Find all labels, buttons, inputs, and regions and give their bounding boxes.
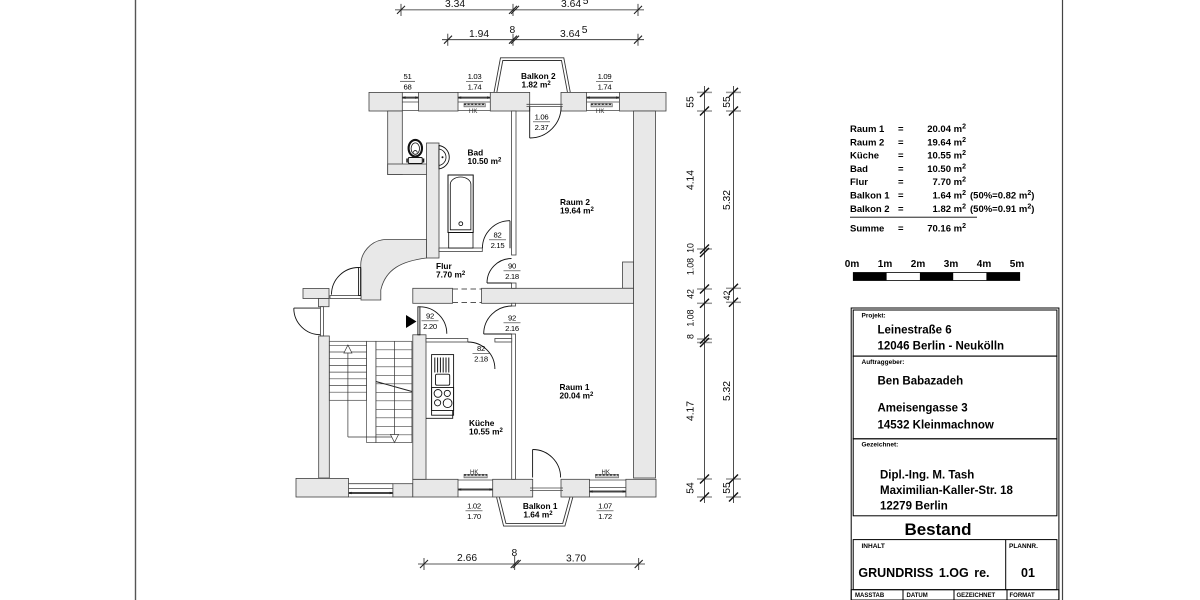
svg-text:1.09: 1.09 (598, 72, 612, 81)
svg-text:4.17: 4.17 (686, 401, 697, 421)
svg-text:5.32: 5.32 (722, 190, 733, 210)
svg-text:55: 55 (686, 96, 697, 108)
svg-text:10: 10 (686, 243, 696, 253)
svg-text:2.20: 2.20 (423, 322, 437, 331)
svg-text:12046 Berlin - Neukölln: 12046 Berlin - Neukölln (878, 341, 1005, 353)
svg-text:8: 8 (686, 334, 696, 339)
svg-text:2m: 2m (911, 259, 926, 270)
svg-text:HK: HK (602, 470, 610, 476)
svg-text:Bestand: Bestand (904, 520, 971, 539)
svg-text:1.06: 1.06 (535, 113, 549, 122)
svg-text:42: 42 (722, 291, 732, 301)
svg-text:4m: 4m (977, 259, 992, 270)
svg-text:=: = (898, 204, 904, 215)
svg-text:20.04 m2: 20.04 m2 (560, 390, 594, 400)
svg-text:1.72: 1.72 (598, 512, 612, 521)
svg-text:70.16 m2: 70.16 m2 (927, 223, 966, 235)
svg-text:0m: 0m (845, 259, 860, 270)
svg-text:Balkon 1: Balkon 1 (850, 191, 890, 202)
svg-text:82: 82 (477, 344, 485, 353)
svg-text:Bad: Bad (850, 164, 868, 175)
svg-text:Maximilian-Kaller-Str. 18: Maximilian-Kaller-Str. 18 (880, 485, 1014, 497)
svg-text:3.64: 3.64 (560, 29, 580, 40)
svg-text:3.70: 3.70 (566, 554, 586, 565)
svg-text:MASSTAB: MASSTAB (855, 593, 885, 599)
svg-text:1.70: 1.70 (467, 512, 481, 521)
svg-text:1.74: 1.74 (468, 83, 483, 92)
svg-text:HK: HK (469, 109, 477, 115)
svg-text:2.18: 2.18 (474, 355, 488, 364)
svg-text:92: 92 (508, 314, 516, 323)
svg-text:HK: HK (596, 109, 604, 115)
svg-text:DATUM: DATUM (907, 593, 928, 599)
svg-text:Summe: Summe (850, 224, 884, 235)
svg-text:10.50 m2: 10.50 m2 (927, 163, 966, 175)
svg-text:1.82 m2: 1.82 m2 (933, 203, 967, 215)
svg-text:10.55 m2: 10.55 m2 (927, 150, 966, 162)
svg-text:Balkon 2: Balkon 2 (850, 204, 890, 215)
svg-text:=: = (898, 177, 904, 188)
svg-text:55: 55 (722, 482, 733, 494)
svg-text:1.07: 1.07 (598, 502, 612, 511)
svg-text:5m: 5m (1010, 259, 1025, 270)
svg-text:19.64 m2: 19.64 m2 (560, 205, 594, 215)
svg-text:90: 90 (508, 262, 516, 271)
svg-text:2.15: 2.15 (491, 241, 505, 250)
svg-text:1.64 m2: 1.64 m2 (933, 190, 967, 202)
svg-text:7.70 m2: 7.70 m2 (436, 269, 466, 279)
svg-text:2.18: 2.18 (505, 272, 519, 281)
svg-text:PLANNR.: PLANNR. (1009, 543, 1038, 550)
svg-text:Projekt:: Projekt: (862, 313, 886, 320)
svg-text:4.14: 4.14 (686, 170, 697, 190)
svg-text:19.64 m2: 19.64 m2 (927, 137, 966, 149)
svg-text:1.64 m2: 1.64 m2 (523, 509, 553, 519)
svg-text:FORMAT: FORMAT (1010, 593, 1036, 599)
svg-text:82: 82 (494, 231, 502, 240)
svg-text:Ben Babazadeh: Ben Babazadeh (878, 376, 964, 388)
svg-text:=: = (898, 151, 904, 162)
svg-text:42: 42 (686, 289, 696, 299)
svg-text:1m: 1m (878, 259, 893, 270)
svg-text:HK: HK (470, 470, 478, 476)
svg-text:10.55 m2: 10.55 m2 (469, 426, 503, 436)
svg-text:5: 5 (582, 25, 588, 36)
svg-text:Flur: Flur (850, 177, 868, 188)
svg-text:GEZEICHNET: GEZEICHNET (957, 593, 996, 599)
svg-text:Auftraggeber:: Auftraggeber: (862, 359, 905, 366)
svg-text:Ameisengasse 3: Ameisengasse 3 (878, 403, 968, 415)
svg-text:GRUNDRISS 1.OG re.: GRUNDRISS 1.OG re. (858, 566, 989, 580)
svg-text:55: 55 (722, 96, 733, 108)
svg-text:2.66: 2.66 (457, 553, 477, 564)
svg-text:1.82 m2: 1.82 m2 (522, 79, 552, 89)
svg-text:1.02: 1.02 (467, 502, 481, 511)
svg-text:Gezeichnet:: Gezeichnet: (862, 442, 899, 449)
svg-text:1.74: 1.74 (598, 83, 613, 92)
svg-text:Raum 2: Raum 2 (850, 137, 884, 148)
svg-text:=: = (898, 224, 904, 235)
svg-text:10.50 m2: 10.50 m2 (468, 156, 502, 166)
svg-text:Küche: Küche (850, 151, 879, 162)
svg-text:2.37: 2.37 (535, 123, 549, 132)
svg-text:3m: 3m (944, 259, 959, 270)
svg-text:=: = (898, 164, 904, 175)
svg-text:12279 Berlin: 12279 Berlin (880, 501, 948, 513)
svg-text:1.08: 1.08 (686, 258, 696, 275)
svg-text:Dipl.-Ing. M. Tash: Dipl.-Ing. M. Tash (880, 470, 974, 482)
svg-text:=: = (898, 124, 904, 135)
svg-text:1.94: 1.94 (469, 29, 489, 40)
svg-text:(50%=0.82 m2): (50%=0.82 m2) (970, 190, 1034, 202)
svg-text:1.08: 1.08 (686, 309, 696, 326)
svg-text:INHALT: INHALT (862, 543, 885, 550)
svg-text:8: 8 (510, 25, 516, 36)
svg-text:2.16: 2.16 (505, 324, 519, 333)
svg-text:92: 92 (426, 312, 434, 321)
svg-text:(50%=0.91 m2): (50%=0.91 m2) (970, 203, 1034, 215)
svg-text:68: 68 (404, 83, 412, 92)
svg-text:14532 Kleinmachnow: 14532 Kleinmachnow (878, 420, 994, 432)
svg-text:3.34: 3.34 (445, 0, 465, 10)
svg-text:=: = (898, 191, 904, 202)
svg-text:=: = (898, 137, 904, 148)
svg-text:5.32: 5.32 (722, 381, 733, 401)
svg-text:51: 51 (404, 72, 412, 81)
svg-text:1.03: 1.03 (468, 72, 482, 81)
svg-text:5: 5 (583, 0, 589, 7)
svg-text:Raum 1: Raum 1 (850, 124, 885, 135)
svg-text:8: 8 (512, 548, 518, 559)
svg-text:01: 01 (1021, 566, 1035, 580)
svg-text:7.70 m2: 7.70 m2 (933, 177, 967, 189)
svg-text:3.64: 3.64 (561, 0, 581, 10)
svg-text:20.04 m2: 20.04 m2 (927, 124, 966, 136)
svg-text:54: 54 (686, 482, 697, 494)
svg-text:Leinestraße 6: Leinestraße 6 (878, 325, 952, 337)
